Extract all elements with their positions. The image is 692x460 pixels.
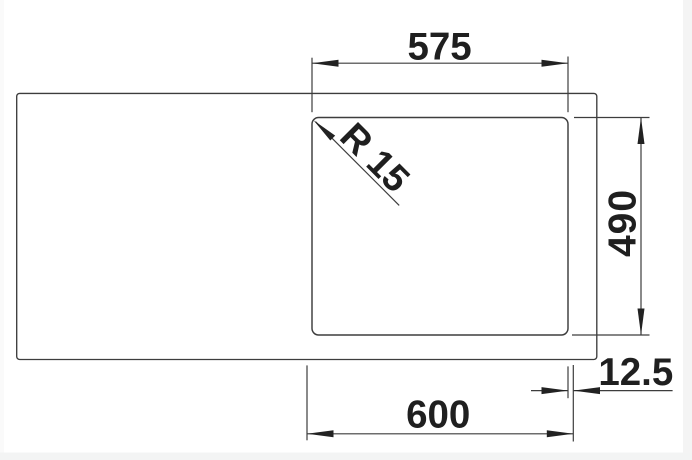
svg-text:490: 490 <box>602 189 645 257</box>
svg-text:575: 575 <box>407 25 471 68</box>
svg-text:12.5: 12.5 <box>598 351 673 394</box>
svg-text:600: 600 <box>406 394 470 437</box>
